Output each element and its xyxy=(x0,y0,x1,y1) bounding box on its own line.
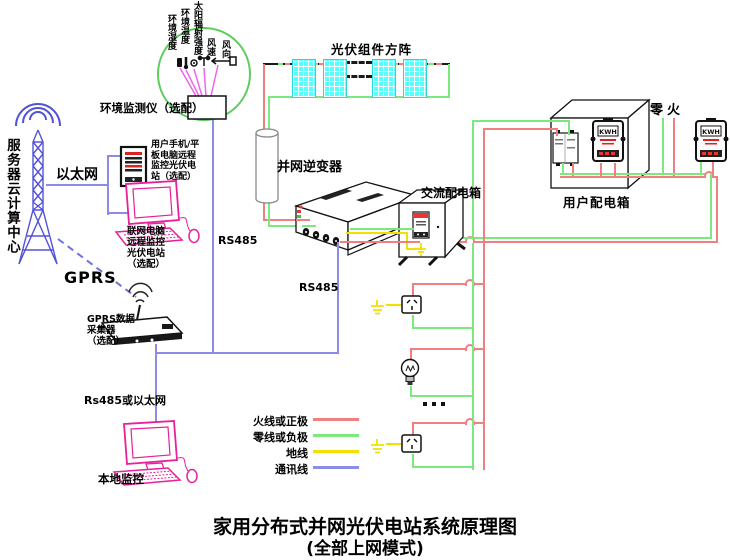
ellipsis-dot xyxy=(441,402,445,406)
note-line: 站（选配） xyxy=(151,172,199,183)
legend-line-ground xyxy=(313,450,359,453)
wire xyxy=(568,120,570,135)
wire xyxy=(710,173,712,179)
wire xyxy=(472,120,570,122)
wire xyxy=(155,344,157,428)
wire xyxy=(340,241,420,243)
wire xyxy=(436,63,442,65)
note-line: 远程监控 xyxy=(127,237,165,248)
wire xyxy=(560,176,718,178)
wire xyxy=(716,176,718,242)
pv-panel xyxy=(403,59,427,98)
wire xyxy=(263,64,265,130)
wire xyxy=(346,232,406,234)
env-monitor-label: 环境监测仪（选配） xyxy=(100,100,204,116)
sensor-label-wind-speed: 风速 xyxy=(204,38,217,62)
legend-label-comm: 通讯线 xyxy=(230,461,308,477)
ellipsis-dot xyxy=(423,402,427,406)
pv-panel xyxy=(292,59,316,98)
pv-array-label: 光伏组件方阵 xyxy=(331,39,412,58)
wire-env-rs485 xyxy=(212,120,214,352)
ellipsis-dot xyxy=(432,402,436,406)
wire xyxy=(278,63,283,65)
wire xyxy=(483,128,558,130)
wire xyxy=(406,232,408,248)
note-line: 板电脑远程 xyxy=(151,151,199,162)
ethernet-label: 以太网 xyxy=(56,164,98,184)
wire xyxy=(710,173,712,238)
wire xyxy=(285,63,290,65)
note-line: 用户手机/平 xyxy=(151,140,199,151)
user-box-label: 用户配电箱 xyxy=(563,192,631,211)
wire xyxy=(428,63,434,65)
wire-live-bus xyxy=(483,128,485,470)
wire xyxy=(155,352,339,354)
legend-line-comm xyxy=(313,466,359,469)
rs485-label: RS485 xyxy=(218,234,257,247)
socket-icon xyxy=(401,434,423,454)
phone-note: 用户手机/平 板电脑远程 监控光伏电 站（选配） xyxy=(151,140,199,182)
gprs-collector-note: GPRS数据 采集器 （选配） xyxy=(87,314,135,347)
wire xyxy=(107,155,109,215)
wire xyxy=(556,128,558,136)
svg-text:KWH: KWH xyxy=(599,128,617,136)
sensor-label-humidity: 环境湿度 xyxy=(165,14,178,62)
inverter-label: 并网逆变器 xyxy=(277,156,342,175)
note-line: 监控光伏电 xyxy=(151,161,199,172)
wire xyxy=(614,163,616,177)
legend-label-neutral: 零线或负极 xyxy=(230,429,308,445)
ground-icon xyxy=(369,438,386,455)
wire xyxy=(410,395,474,397)
wire xyxy=(448,64,450,98)
pc-note: 联网电脑 远程监控 光伏电站 （选配） xyxy=(127,226,165,270)
diagram-canvas: KWH KWH xyxy=(0,0,730,560)
kwh-meter-icon: KWH xyxy=(694,117,728,164)
wire-inverter-rs485 xyxy=(337,242,339,352)
ac-box-label: 交流配电箱 xyxy=(421,184,481,201)
wire xyxy=(472,419,474,425)
gprs-label: GPRS xyxy=(64,268,117,287)
note-line: 采集器 xyxy=(87,325,135,336)
server-center-label: 服务器云计算中心 xyxy=(2,138,22,260)
wire xyxy=(560,173,712,175)
legend-label-live: 火线或正极 xyxy=(230,413,308,429)
note-line: （选配） xyxy=(87,336,135,347)
wire xyxy=(350,228,414,230)
kwh-meter-icon: KWH xyxy=(591,117,625,164)
wire xyxy=(472,345,474,351)
rs485-label: RS485 xyxy=(299,281,338,294)
local-monitor-label: 本地监控 xyxy=(98,471,144,487)
breaker-icon xyxy=(413,212,429,238)
sensor-label-irradiance: 太阳辐射强度 xyxy=(191,1,204,61)
light-bulb-icon xyxy=(398,358,423,387)
wire-jump xyxy=(704,171,714,178)
ground-icon xyxy=(369,299,386,316)
socket-icon xyxy=(401,295,423,315)
zero-live-label: 零火 xyxy=(650,99,684,118)
legend-line-live xyxy=(313,418,359,421)
note-line: 联网电脑 xyxy=(127,226,165,237)
diagram-subtitle: (全部上网模式) xyxy=(150,534,580,559)
wire xyxy=(600,163,602,177)
legend-line-neutral xyxy=(313,434,359,437)
note-line: 光伏电站 xyxy=(127,248,165,259)
wire xyxy=(302,225,316,227)
pv-panel xyxy=(372,59,396,98)
sensor-label-temperature: 环境温度 xyxy=(178,8,191,60)
sensor-label-wind-direction: 风向 xyxy=(219,40,232,64)
wire-dashes xyxy=(344,61,372,68)
wire xyxy=(406,248,422,250)
pv-panel xyxy=(323,59,347,98)
note-line: GPRS数据 xyxy=(87,314,135,325)
wire-dashes xyxy=(344,75,372,82)
wire xyxy=(296,219,310,221)
legend-label-ground: 地线 xyxy=(230,445,308,461)
note-line: （选配） xyxy=(127,259,165,270)
wire xyxy=(412,327,474,329)
wire-neutral-bus xyxy=(472,120,474,470)
svg-text:KWH: KWH xyxy=(702,128,720,136)
wire xyxy=(412,466,474,468)
wire xyxy=(472,280,474,286)
rs485-or-ethernet-label: Rs485或以太网 xyxy=(84,392,166,408)
